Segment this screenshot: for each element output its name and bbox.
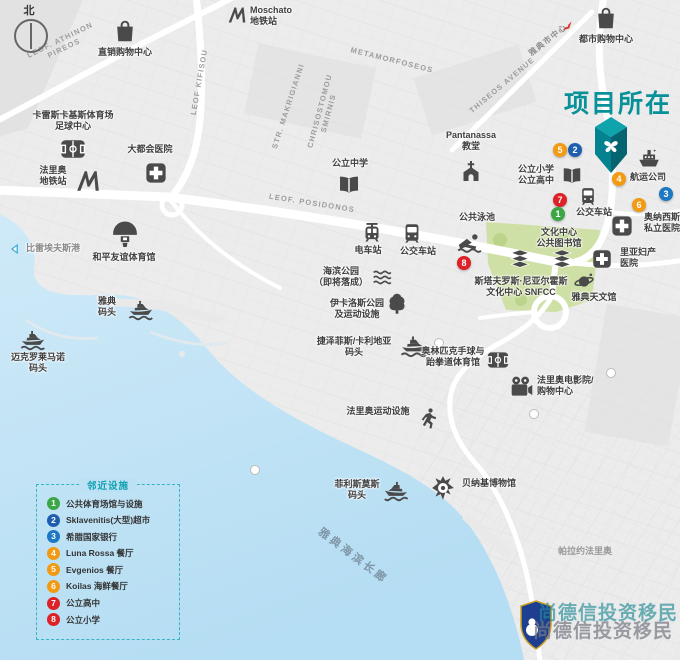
label-line: 公共图书馆 bbox=[536, 238, 581, 249]
open-book-icon bbox=[337, 173, 361, 197]
label-line: 地铁站 bbox=[250, 16, 292, 27]
label-line: 购物中心 bbox=[537, 386, 594, 397]
project-marker-icon bbox=[594, 116, 628, 174]
bus-icon bbox=[578, 186, 598, 206]
waves-icon bbox=[372, 267, 392, 287]
poi-mikrolimano-label: 迈克罗莱马诺 码头 bbox=[11, 352, 65, 374]
area-label-palaio-faliro: 帕拉约法里奥 bbox=[558, 544, 612, 557]
legend-label: Luna Rossa 餐厅 bbox=[66, 547, 134, 559]
open-book-icon bbox=[561, 165, 583, 187]
bus-icon bbox=[401, 222, 423, 244]
label-line: 捷泽菲斯/卡利地亚 bbox=[317, 336, 392, 347]
planet-icon bbox=[573, 270, 595, 292]
legend-item: 2 Sklavenitis(大型)超市 bbox=[47, 514, 179, 527]
label-line: 足球中心 bbox=[32, 121, 113, 132]
poi-shipping-company-label: 航运公司 bbox=[630, 172, 666, 183]
legend-item: 4 Luna Rossa 餐厅 bbox=[47, 547, 179, 560]
books-stack-icon bbox=[509, 248, 531, 270]
legend-badge: 5 bbox=[47, 563, 60, 576]
poi-snfcc-label: 斯塔夫罗斯·尼亚尔霍斯 文化中心 SNFCC bbox=[475, 276, 568, 298]
label-line: 教堂 bbox=[446, 141, 496, 152]
label-line: 跆拳道体育馆 bbox=[421, 357, 484, 368]
legend-label: Evgenios 餐厅 bbox=[66, 564, 123, 576]
cruise-ship-icon bbox=[636, 145, 662, 171]
poi-ikaros-park-label: 伊卡洛斯公园 及运动设施 bbox=[330, 298, 384, 320]
athens-project-map: 北 LEOF. ATHINON PIREOS LEOF KIFISOU META… bbox=[0, 0, 680, 660]
label-line: 医院 bbox=[620, 258, 656, 269]
port-arrow-icon bbox=[8, 242, 22, 256]
poi-delta-marina-label: 捷泽菲斯/卡利地亚 码头 bbox=[317, 336, 392, 358]
label-line: 奥林匹克手球与 bbox=[421, 346, 484, 357]
poi-city-mall-label: 都市购物中心 bbox=[579, 34, 633, 45]
map-badge-8: 8 bbox=[457, 256, 471, 270]
label-line: 卡雷斯卡基斯体育场 bbox=[32, 110, 113, 121]
project-marker bbox=[594, 116, 628, 174]
map-badge-1: 1 bbox=[551, 207, 565, 221]
road-node bbox=[250, 465, 260, 475]
books-stack-icon bbox=[551, 248, 573, 270]
poi-rea-hospital-label: 里亚妇产 医院 bbox=[620, 247, 656, 269]
label-line: 公立小学 bbox=[518, 164, 554, 175]
poi-sef-stadium-label: 和平友谊体育馆 bbox=[92, 252, 155, 263]
legend-box: 邻近设施 1 公共体育场馆与设施 2 Sklavenitis(大型)超市 3 希… bbox=[36, 484, 180, 640]
legend-badge: 7 bbox=[47, 597, 60, 610]
hospital-cross-icon bbox=[145, 162, 167, 184]
church-icon bbox=[459, 159, 483, 183]
poi-middle-school-label: 公立中学 bbox=[332, 158, 368, 169]
poi-bus-station-center-label: 公交车站 bbox=[400, 246, 436, 257]
poi-faliro-sports-label: 法里奥运动设施 bbox=[346, 406, 409, 417]
poi-cinema-label: 法里奥电影院/ 购物中心 bbox=[537, 375, 594, 397]
basketball-arena-icon bbox=[110, 219, 140, 249]
label-line: 奥纳西斯 bbox=[644, 212, 680, 223]
boat-icon bbox=[382, 474, 410, 502]
map-badge-6: 6 bbox=[632, 198, 646, 212]
poi-tram-station-label: 电车站 bbox=[354, 245, 381, 256]
legend-item: 6 Koilas 海鲜餐厅 bbox=[47, 580, 179, 593]
label-line: 里亚妇产 bbox=[620, 247, 656, 258]
poi-project-schools-label: 公立小学 公立高中 bbox=[518, 164, 554, 186]
metro-icon bbox=[75, 168, 101, 194]
city-center-arrow-icon bbox=[561, 20, 573, 32]
legend-item: 3 希腊国家银行 bbox=[47, 530, 179, 543]
legend-label: Sklavenitis(大型)超市 bbox=[66, 514, 150, 526]
legend-badge: 6 bbox=[47, 580, 60, 593]
poi-faliro-metro-label: 法里奥 地铁站 bbox=[39, 165, 66, 187]
label-line: 迈克罗莱马诺 bbox=[11, 352, 65, 363]
legend-label: 希腊国家银行 bbox=[66, 531, 117, 543]
label-line: 地铁站 bbox=[39, 176, 66, 187]
road-node bbox=[529, 409, 539, 419]
legend-item: 5 Evgenios 餐厅 bbox=[47, 563, 179, 576]
poi-pantanassa-label: Pantanassa 教堂 bbox=[446, 130, 496, 152]
road-node bbox=[606, 368, 616, 378]
legend-label: 公立小学 bbox=[66, 614, 100, 626]
label-line: 法里奥 bbox=[39, 165, 66, 176]
label-line: （即将落成） bbox=[314, 277, 368, 288]
label-line: 斯塔夫罗斯·尼亚尔霍斯 bbox=[475, 276, 568, 287]
runner-icon bbox=[417, 407, 439, 429]
poi-moschato-label: Moschato 地铁站 bbox=[250, 5, 292, 27]
legend-title: 邻近设施 bbox=[79, 478, 137, 492]
poi-seaside-park-label: 海滨公园 （即将落成） bbox=[314, 266, 368, 288]
metro-icon bbox=[227, 5, 247, 25]
hospital-cross-icon bbox=[592, 249, 612, 269]
poi-onassis-hospital-label: 奥纳西斯 私立医院 bbox=[644, 212, 680, 234]
label-line: 法里奥电影院/ bbox=[537, 375, 594, 386]
ornament-medallion-icon bbox=[430, 475, 456, 501]
legend-badge: 2 bbox=[47, 514, 60, 527]
map-badge-7: 7 bbox=[553, 193, 567, 207]
watermark-text-2: 尚德信投资移民 bbox=[533, 616, 673, 643]
legend-item: 7 公立高中 bbox=[47, 597, 179, 610]
legend-label: Koilas 海鲜餐厅 bbox=[66, 580, 128, 592]
compass-north-label: 北 bbox=[24, 2, 35, 18]
poi-piraeus-port-label: 比雷埃夫斯港 bbox=[26, 243, 80, 254]
label-line: 码头 bbox=[334, 490, 379, 501]
legend-item: 1 公共体育场馆与设施 bbox=[47, 497, 179, 510]
legend-badge: 4 bbox=[47, 547, 60, 560]
poi-karaiskakis-label: 卡雷斯卡基斯体育场 足球中心 bbox=[32, 110, 113, 132]
tram-icon bbox=[360, 220, 384, 244]
poi-outlet-mall-label: 直销购物中心 bbox=[98, 47, 152, 58]
poi-culture-center-label: 文化中心 公共图书馆 bbox=[536, 227, 581, 249]
map-badge-2: 2 bbox=[568, 143, 582, 157]
legend-label: 公立高中 bbox=[66, 597, 100, 609]
poi-bus-station-project-label: 公交车站 bbox=[576, 207, 612, 218]
compass-icon bbox=[14, 19, 48, 53]
poi-benaki-museum-label: 贝纳基博物馆 bbox=[462, 478, 516, 489]
label-line: Pantanassa bbox=[446, 130, 496, 141]
poi-metropolitan-label: 大都会医院 bbox=[127, 144, 172, 155]
legend-badge: 8 bbox=[47, 613, 60, 626]
label-line: 文化中心 bbox=[536, 227, 581, 238]
legend-label: 公共体育场馆与设施 bbox=[66, 498, 143, 510]
movie-camera-icon bbox=[508, 374, 534, 400]
label-line: 海滨公园 bbox=[314, 266, 368, 277]
label-line: 及运动设施 bbox=[330, 309, 384, 320]
poi-flisvos-marina-label: 菲利斯莫斯 码头 bbox=[334, 479, 379, 501]
legend-badge: 1 bbox=[47, 497, 60, 510]
label-line: 码头 bbox=[98, 307, 116, 318]
label-line: 文化中心 SNFCC bbox=[475, 287, 568, 298]
hospital-cross-icon bbox=[611, 215, 633, 237]
label-line: 菲利斯莫斯 bbox=[334, 479, 379, 490]
legend-item: 8 公立小学 bbox=[47, 613, 179, 626]
shopping-bag-icon bbox=[112, 18, 138, 44]
label-line: 码头 bbox=[11, 363, 65, 374]
poi-handball-arena-label: 奥林匹克手球与 跆拳道体育馆 bbox=[421, 346, 484, 368]
project-location-title: 项目所在 bbox=[564, 84, 672, 120]
map-badge-3: 3 bbox=[659, 187, 673, 201]
label-line: 伊卡洛斯公园 bbox=[330, 298, 384, 309]
label-line: Moschato bbox=[250, 5, 292, 16]
poi-planetarium-label: 雅典天文馆 bbox=[571, 292, 616, 303]
swimmer-icon bbox=[456, 230, 482, 256]
boat-icon bbox=[127, 293, 155, 321]
poi-athens-marina-label: 雅典 码头 bbox=[98, 296, 116, 318]
poi-public-pool-label: 公共泳池 bbox=[459, 212, 495, 223]
map-badge-5: 5 bbox=[553, 143, 567, 157]
label-line: 码头 bbox=[317, 347, 392, 358]
map-badge-4: 4 bbox=[612, 172, 626, 186]
label-line: 私立医院 bbox=[644, 223, 680, 234]
soccer-field-icon bbox=[58, 134, 88, 164]
tree-icon bbox=[385, 292, 409, 316]
legend-badge: 3 bbox=[47, 530, 60, 543]
label-line: 雅典 bbox=[98, 296, 116, 307]
boat-icon bbox=[19, 323, 47, 351]
sports-court-icon bbox=[485, 347, 511, 373]
label-line: 公立高中 bbox=[518, 175, 554, 186]
shopping-bag-icon bbox=[593, 5, 619, 31]
